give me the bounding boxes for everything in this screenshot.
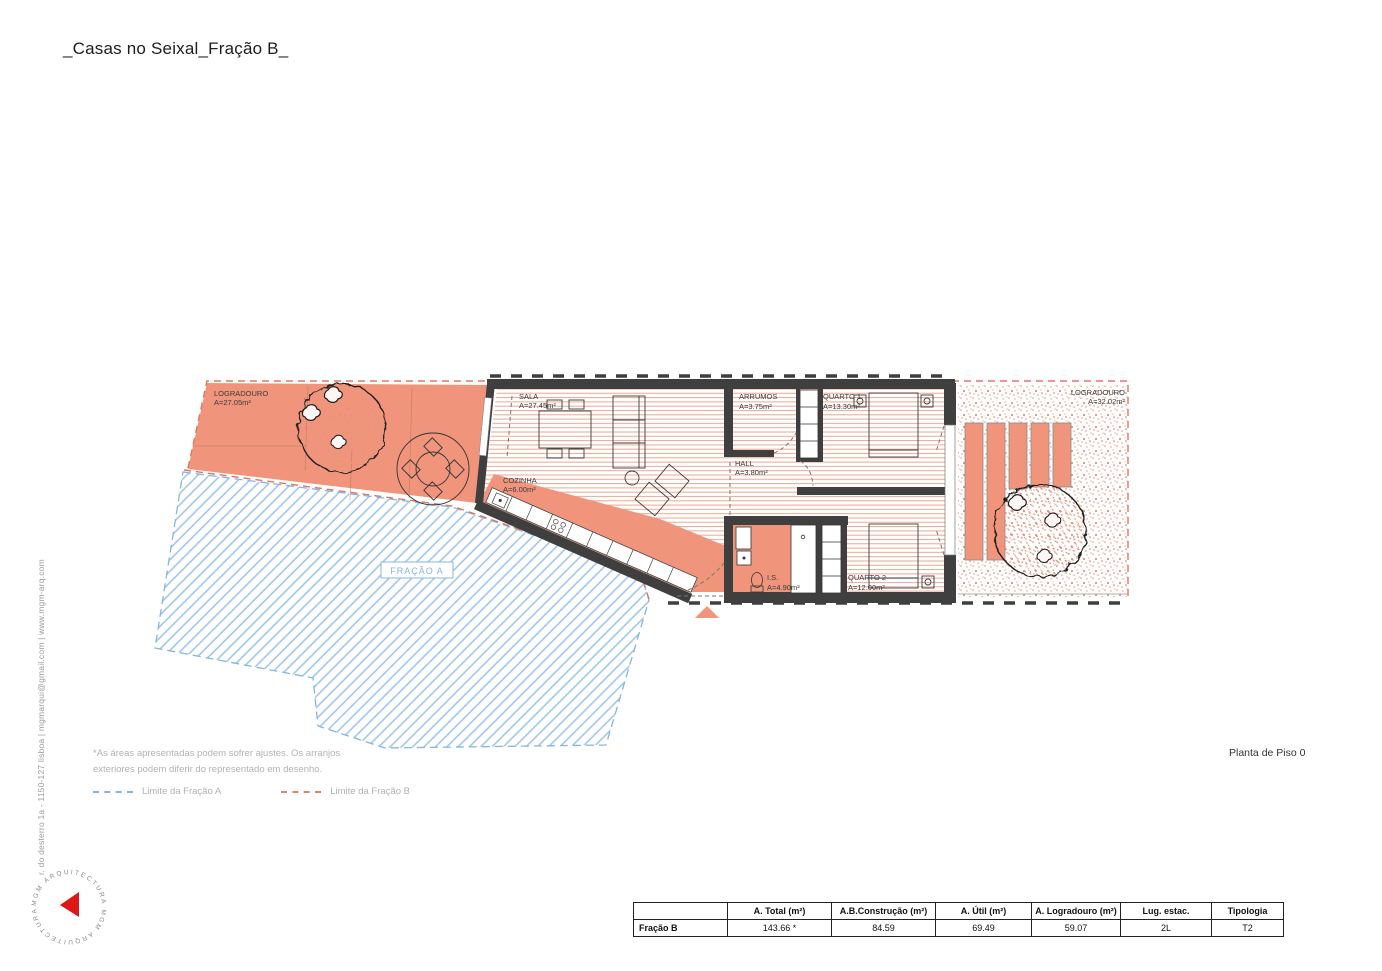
svg-text:A=4.90m²: A=4.90m² (767, 583, 800, 592)
svg-text:A=3.80m²: A=3.80m² (735, 468, 768, 477)
east-glass-doors (945, 425, 955, 555)
floor-label: Planta de Piso 0 (1229, 747, 1305, 759)
svg-text:A=27.05m²: A=27.05m² (214, 398, 251, 407)
legend: Limite da Fração A Limite da Fração B (93, 786, 410, 797)
svg-text:A=13.30m²: A=13.30m² (823, 402, 860, 411)
svg-text:A=12.00m²: A=12.00m² (848, 583, 885, 592)
cell-fracao: Fração B (634, 920, 728, 937)
middle-wall (797, 487, 948, 495)
svg-text:A=27.45m²: A=27.45m² (519, 401, 556, 410)
cell-tipologia: T2 (1212, 920, 1284, 937)
fracao-a-dash-icon (93, 791, 133, 793)
svg-text:A=3.75m²: A=3.75m² (739, 402, 772, 411)
label-sala: SALA (519, 392, 538, 401)
floor-plan: FRAÇÃO A (0, 0, 1382, 971)
header-tipologia: Tipologia (1212, 903, 1284, 920)
area-notes: *As áreas apresentadas podem sofrer ajus… (93, 746, 340, 778)
note-line-2: exteriores podem diferir do representado… (93, 762, 340, 778)
table-row: Fração B 143.66 * 84.59 69.49 59.07 2L T… (634, 920, 1284, 937)
label-cozinha: COZINHA (503, 476, 537, 485)
label-logradouro-left: LOGRADOURO (214, 389, 268, 398)
areas-table: A. Total (m²) A.B.Construção (m²) A. Úti… (633, 902, 1284, 937)
label-arrumos: ARRUMOS (739, 392, 777, 401)
label-is: I.S. (767, 573, 778, 582)
header-a-total: A. Total (m²) (728, 903, 832, 920)
cell-a-total: 143.66 * (728, 920, 832, 937)
header-a-util: A. Útil (m²) (936, 903, 1032, 920)
label-hall: HALL (735, 459, 754, 468)
fracao-b-dash-icon (281, 791, 321, 793)
tree-icon (994, 485, 1086, 577)
cell-ab-construcao: 84.59 (832, 920, 936, 937)
svg-text:A=6.00m²: A=6.00m² (503, 485, 536, 494)
east-wall (944, 383, 956, 425)
cell-a-logradouro: 59.07 (1032, 920, 1121, 937)
north-wall (487, 379, 955, 389)
fracao-a-label: FRAÇÃO A (390, 566, 444, 576)
label-quarto1: QUARTO 1 (823, 392, 861, 401)
legend-fracao-a: Limite da Fração A (142, 786, 221, 797)
header-lug-estac: Lug. estac. (1121, 903, 1212, 920)
washbasin-icon (736, 527, 751, 549)
header-ab-construcao: A.B.Construção (m²) (832, 903, 936, 920)
entrance-arrow-icon (695, 606, 719, 618)
drawing-sheet: _Casas no Seixal_Fração B_ r. do desterr… (0, 0, 1382, 971)
table-header-row: A. Total (m²) A.B.Construção (m²) A. Úti… (634, 903, 1284, 920)
legend-fracao-b: Limite da Fração B (330, 786, 410, 797)
label-quarto2: QUARTO 2 (848, 573, 886, 582)
header-empty (634, 903, 728, 920)
label-logradouro-right: LOGRADOURO (1071, 388, 1125, 397)
svg-text:A=32.02m²: A=32.02m² (1088, 397, 1125, 406)
cell-lug-estac: 2L (1121, 920, 1212, 937)
note-line-1: *As áreas apresentadas podem sofrer ajus… (93, 746, 340, 762)
cell-a-util: 69.49 (936, 920, 1032, 937)
header-a-logradouro: A. Logradouro (m²) (1032, 903, 1121, 920)
